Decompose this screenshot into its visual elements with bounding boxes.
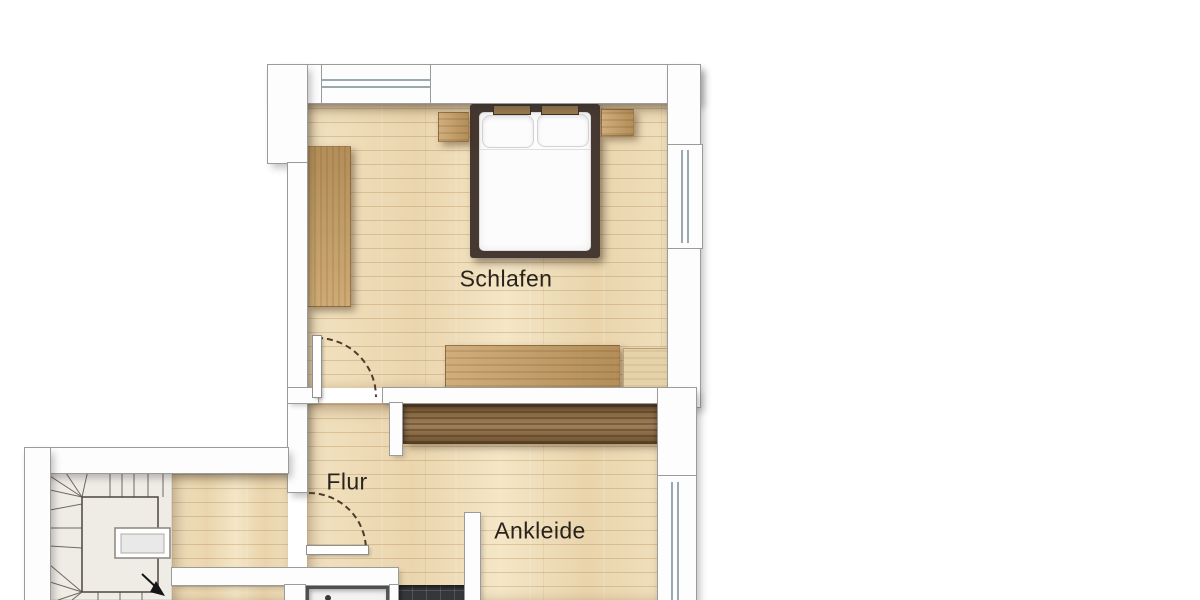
wall-hall-dressing-divider — [390, 403, 402, 455]
wall-stair-left — [25, 448, 50, 600]
window-top-glass-line-1 — [322, 79, 430, 81]
sideboard — [445, 345, 620, 388]
room-label-ankleide: Ankleide — [494, 518, 585, 545]
dressing-room-wardrobe — [403, 403, 658, 444]
bedroom-wardrobe — [307, 146, 351, 307]
nightstand-left — [438, 112, 469, 142]
window-bedroom-right-glass-line-2 — [687, 150, 689, 243]
window-dressing-right — [658, 476, 696, 600]
wall-left-upper — [268, 65, 307, 163]
window-bedroom-right — [668, 145, 702, 248]
shower-tray — [305, 585, 390, 600]
bed-pillow-left — [482, 115, 534, 148]
window-top-glass-line-2 — [322, 86, 430, 88]
wall-left-mid — [288, 163, 307, 492]
window-bedroom-right-glass-line-1 — [681, 150, 683, 243]
bed-pillow-right — [537, 114, 589, 147]
wall-bath-left — [285, 585, 305, 600]
double-bed — [470, 104, 600, 258]
wall-bath-right — [465, 513, 480, 600]
bedroom-door-leaf — [313, 336, 321, 397]
wall-stair-top — [25, 448, 288, 473]
bathroom-dark-tiles — [398, 585, 465, 600]
room-label-schlafen: Schlafen — [460, 266, 553, 293]
winder-stairs-drawing — [50, 470, 172, 600]
window-dressing-right-glass-line-1 — [671, 482, 673, 600]
floor-plan: Schlafen Flur Ankleide — [0, 0, 1200, 600]
wall-bedroom-bottom — [383, 388, 668, 403]
window-dressing-right-glass-line-2 — [677, 482, 679, 600]
wall-shower-tile-divider — [390, 585, 398, 600]
chest — [623, 348, 668, 388]
wall-bath-top — [172, 568, 398, 585]
hall-door-leaf — [307, 546, 368, 554]
headboard-panel-left — [493, 105, 531, 115]
staircase — [50, 470, 172, 600]
chimney-block — [115, 528, 170, 558]
window-top — [322, 65, 430, 103]
headboard-panel-right — [541, 105, 579, 115]
duvet-fold-line — [480, 149, 590, 150]
room-label-flur: Flur — [326, 469, 367, 496]
shower-drain-icon — [325, 595, 331, 600]
nightstand-right — [601, 109, 634, 136]
